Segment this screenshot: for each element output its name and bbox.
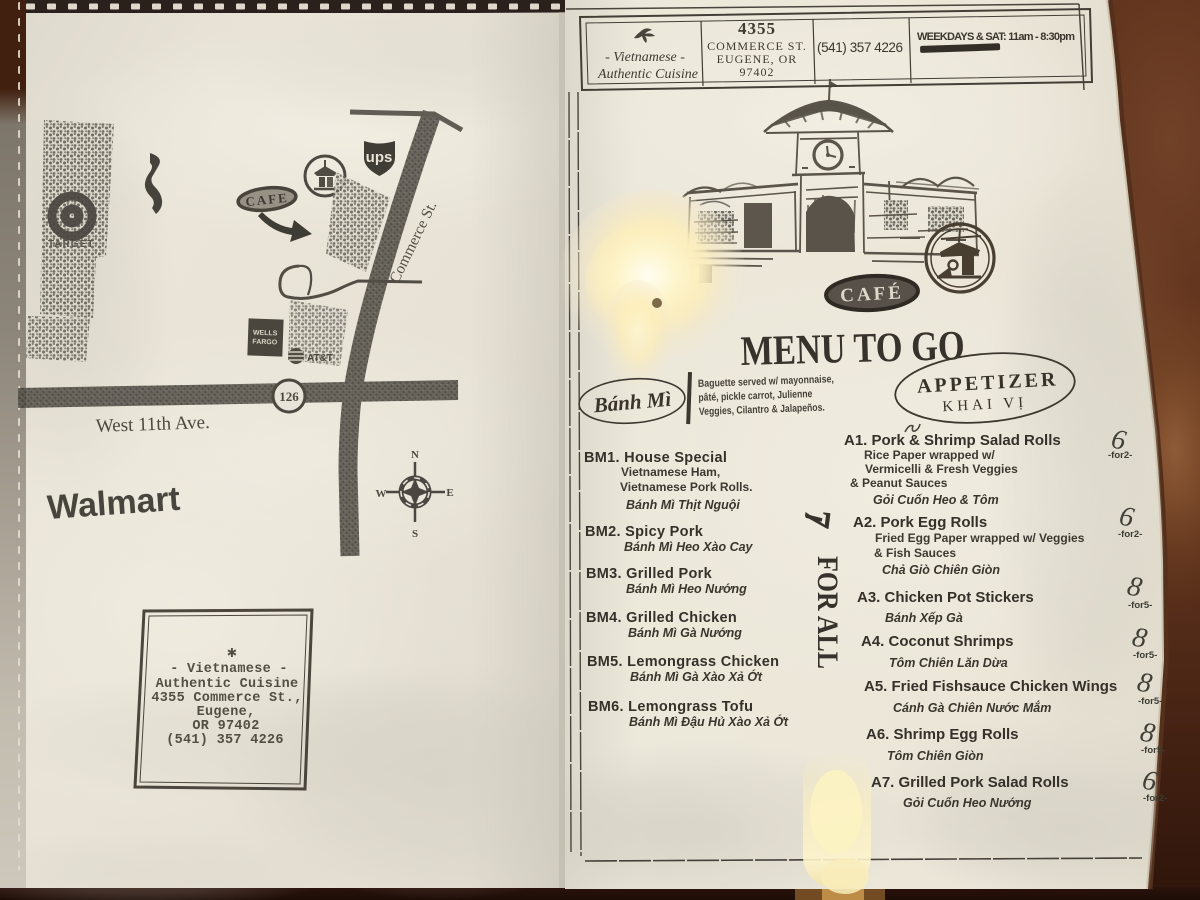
svg-text:Bánh Mì Thịt Nguội: Bánh Mì Thịt Nguội	[626, 498, 740, 512]
svg-text:A3. Chicken Pot Stickers: A3. Chicken Pot Stickers	[857, 589, 1034, 606]
svg-text:Vietnamese Pork Rolls.: Vietnamese Pork Rolls.	[620, 480, 753, 494]
svg-text:ups: ups	[366, 149, 393, 166]
svg-text:AT&T: AT&T	[307, 353, 333, 364]
svg-text:Authentic Cuisine: Authentic Cuisine	[597, 67, 698, 82]
svg-text:WELLS: WELLS	[253, 330, 278, 338]
svg-text:-for5-: -for5-	[1133, 650, 1157, 661]
svg-text:Bánh Mì Gà Xào Xả Ớt: Bánh Mì Gà Xào Xả Ớt	[630, 669, 763, 684]
svg-text:BM2. Spicy Pork: BM2. Spicy Pork	[585, 524, 704, 540]
svg-text:FOR ALL: FOR ALL	[811, 556, 844, 669]
svg-text:S: S	[412, 528, 418, 540]
svg-text:Chả Giò Chiên Giòn: Chả Giò Chiên Giòn	[882, 563, 1000, 577]
svg-text:A1. Pork & Shrimp Salad Rolls: A1. Pork & Shrimp Salad Rolls	[844, 432, 1061, 449]
svg-text:-for5-: -for5-	[1128, 600, 1152, 611]
svg-text:Bánh Mì Gà Nướng: Bánh Mì Gà Nướng	[628, 626, 742, 640]
svg-text:OR 97402: OR 97402	[192, 719, 259, 734]
svg-text:Bánh Mì Heo Nướng: Bánh Mì Heo Nướng	[626, 582, 747, 596]
svg-text:N: N	[411, 449, 419, 461]
svg-text:126: 126	[279, 389, 299, 404]
svg-text:BM4. Grilled Chicken: BM4. Grilled Chicken	[586, 610, 737, 626]
svg-text:-for2-: -for2-	[1143, 793, 1167, 804]
svg-text:BM5. Lemongrass Chicken: BM5. Lemongrass Chicken	[587, 654, 779, 670]
svg-text:Authentic Cuisine: Authentic Cuisine	[156, 677, 299, 692]
svg-text:EUGENE, OR: EUGENE, OR	[717, 52, 798, 66]
svg-text:& Fish Sauces: & Fish Sauces	[874, 546, 956, 560]
svg-text:-for2-: -for2-	[1118, 529, 1142, 540]
svg-text:(541) 357 4226: (541) 357 4226	[817, 40, 903, 55]
svg-text:A6. Shrimp Egg Rolls: A6. Shrimp Egg Rolls	[866, 726, 1019, 743]
svg-text:FARGO: FARGO	[252, 339, 278, 347]
svg-text:BM6. Lemongrass Tofu: BM6. Lemongrass Tofu	[588, 699, 753, 715]
svg-text:Bánh Xếp Gà: Bánh Xếp Gà	[885, 611, 963, 625]
svg-text:BM3. Grilled Pork: BM3. Grilled Pork	[586, 566, 713, 582]
svg-text:CAFÉ: CAFÉ	[840, 281, 905, 306]
svg-text:A5. Fried Fishsauce Chicken Wi: A5. Fried Fishsauce Chicken Wings	[864, 678, 1117, 695]
svg-text:- Vietnamese -: - Vietnamese -	[170, 662, 288, 677]
svg-text:- Vietnamese -: - Vietnamese -	[605, 50, 685, 65]
svg-text:4355: 4355	[738, 19, 776, 38]
svg-text:✱: ✱	[227, 644, 237, 662]
svg-text:Bánh Mì Heo Xào Cay: Bánh Mì Heo Xào Cay	[624, 540, 754, 554]
svg-text:Tôm Chiên Lăn Dừa: Tôm Chiên Lăn Dừa	[889, 656, 1008, 670]
svg-text:E: E	[446, 487, 453, 499]
svg-text:TARGET: TARGET	[48, 239, 94, 250]
svg-text:WEEKDAYS & SAT: 11am - 8:30pm: WEEKDAYS & SAT: 11am - 8:30pm	[917, 31, 1075, 43]
svg-text:-for2-: -for2-	[1108, 450, 1132, 461]
svg-text:4355 Commerce St.,: 4355 Commerce St.,	[151, 691, 302, 706]
svg-text:-for5-: -for5-	[1141, 745, 1165, 756]
svg-text:A2. Pork Egg Rolls: A2. Pork Egg Rolls	[853, 514, 987, 531]
svg-text:& Peanut Sauces: & Peanut Sauces	[850, 476, 948, 490]
svg-text:Tôm Chiên Giòn: Tôm Chiên Giòn	[887, 749, 984, 763]
svg-text:Cánh Gà Chiên Nước Mắm: Cánh Gà Chiên Nước Mắm	[893, 700, 1051, 715]
svg-text:(541) 357 4226: (541) 357 4226	[166, 733, 284, 748]
svg-text:Fried Egg Paper wrapped w/ Veg: Fried Egg Paper wrapped w/ Veggies	[875, 531, 1085, 545]
svg-text:W: W	[376, 488, 387, 500]
svg-text:MENU TO GO: MENU TO GO	[740, 323, 965, 375]
svg-text:Rice Paper wrapped w/: Rice Paper wrapped w/	[864, 448, 995, 462]
svg-text:97402: 97402	[740, 65, 775, 79]
svg-text:Eugene,: Eugene,	[197, 705, 256, 720]
svg-text:West 11th Ave.: West 11th Ave.	[95, 412, 210, 437]
svg-text:Vermicelli & Fresh Veggies: Vermicelli & Fresh Veggies	[865, 462, 1018, 476]
svg-text:BM1. House Special: BM1. House Special	[584, 450, 727, 466]
svg-text:-for5-: -for5-	[1138, 696, 1162, 707]
svg-text:Bánh Mì Đậu Hủ Xào Xả Ớt: Bánh Mì Đậu Hủ Xào Xả Ớt	[629, 714, 789, 729]
svg-text:COMMERCE ST.: COMMERCE ST.	[707, 39, 807, 53]
svg-text:Gỏi Cuốn Heo Nướng: Gỏi Cuốn Heo Nướng	[903, 796, 1032, 810]
svg-text:Vietnamese Ham,: Vietnamese Ham,	[621, 465, 720, 479]
svg-text:A7. Grilled Pork Salad Rolls: A7. Grilled Pork Salad Rolls	[871, 774, 1069, 791]
svg-text:A4. Coconut Shrimps: A4. Coconut Shrimps	[861, 633, 1014, 650]
svg-text:Gỏi Cuốn Heo & Tôm: Gỏi Cuốn Heo & Tôm	[873, 493, 999, 507]
